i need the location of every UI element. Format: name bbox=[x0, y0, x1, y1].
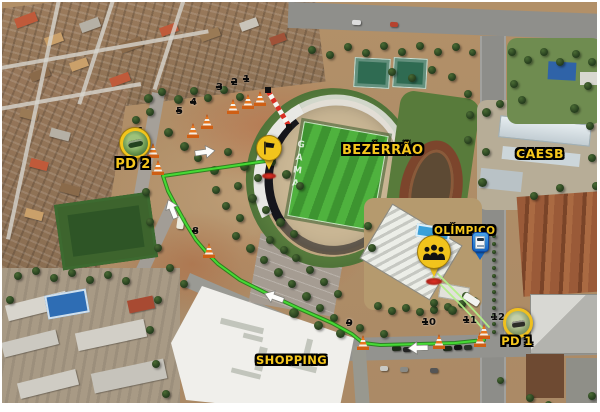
bus-glyph bbox=[475, 236, 485, 249]
tree bbox=[236, 93, 244, 101]
tree bbox=[236, 214, 244, 222]
tree bbox=[496, 100, 504, 108]
tree bbox=[478, 178, 487, 187]
vehicle bbox=[390, 22, 398, 27]
industrial-warehouse bbox=[530, 294, 598, 354]
tree bbox=[314, 321, 323, 330]
tree bbox=[288, 280, 296, 288]
tree bbox=[448, 73, 456, 81]
road-north bbox=[288, 2, 598, 40]
tree bbox=[276, 218, 285, 227]
tree bbox=[430, 299, 438, 307]
tree bbox=[524, 56, 532, 64]
tree bbox=[530, 192, 538, 200]
car-icon bbox=[127, 138, 143, 148]
tree bbox=[222, 202, 230, 210]
tree bbox=[50, 274, 58, 282]
vehicle bbox=[454, 345, 462, 350]
tree bbox=[334, 290, 342, 298]
tree bbox=[448, 306, 457, 315]
tree bbox=[492, 274, 496, 278]
tree bbox=[540, 48, 548, 56]
industrial-rust-roofs bbox=[517, 191, 598, 297]
tree bbox=[246, 244, 255, 253]
tree bbox=[416, 42, 424, 50]
tree bbox=[518, 96, 526, 104]
tree bbox=[510, 80, 518, 88]
tree bbox=[408, 74, 416, 82]
tree bbox=[492, 266, 496, 270]
tree bbox=[482, 148, 490, 156]
vehicle bbox=[403, 347, 411, 352]
bus-icon bbox=[472, 232, 489, 252]
tree bbox=[146, 326, 154, 334]
pin-anchor-spot bbox=[262, 173, 276, 179]
tree bbox=[508, 48, 516, 56]
sport-court bbox=[392, 57, 428, 89]
tree bbox=[326, 51, 334, 59]
tree bbox=[154, 296, 162, 304]
tree bbox=[398, 48, 406, 56]
tree bbox=[132, 116, 140, 124]
tree bbox=[158, 88, 166, 96]
tree bbox=[146, 108, 154, 116]
frame-border bbox=[0, 0, 600, 2]
label-caesb: CAESB bbox=[516, 146, 564, 162]
tree bbox=[289, 308, 299, 318]
pin-anchor-spot bbox=[426, 278, 442, 285]
tree bbox=[492, 258, 496, 262]
soccer-field bbox=[54, 192, 158, 271]
tree bbox=[144, 94, 153, 103]
tree bbox=[497, 377, 504, 384]
tree bbox=[588, 154, 596, 162]
tree bbox=[330, 314, 338, 322]
vehicle bbox=[176, 216, 185, 230]
tree bbox=[232, 232, 240, 240]
tree bbox=[336, 329, 345, 338]
tree bbox=[388, 307, 396, 315]
tree bbox=[368, 244, 376, 252]
tree bbox=[469, 49, 476, 56]
frame-border bbox=[0, 0, 2, 412]
photo-pin-icon bbox=[119, 127, 151, 159]
tree bbox=[428, 66, 436, 74]
tree bbox=[492, 322, 496, 326]
tree bbox=[306, 266, 314, 274]
car-icon bbox=[512, 320, 526, 328]
tree bbox=[526, 394, 534, 402]
tree bbox=[280, 246, 288, 254]
tree bbox=[274, 268, 283, 277]
sport-court bbox=[353, 57, 391, 89]
satellite-imagery: GAMA 123456789101112 bbox=[2, 2, 598, 403]
tree bbox=[316, 304, 324, 312]
vehicle bbox=[400, 367, 408, 372]
traffic-cone-icon bbox=[152, 160, 164, 175]
tree bbox=[570, 104, 579, 113]
traffic-cone-icon bbox=[187, 123, 199, 138]
tree bbox=[204, 94, 212, 102]
tree bbox=[364, 222, 372, 230]
traffic-cone-icon bbox=[201, 114, 213, 129]
tree bbox=[210, 166, 219, 175]
tree bbox=[482, 108, 491, 117]
tree bbox=[492, 242, 496, 246]
tree bbox=[464, 136, 472, 144]
tree bbox=[588, 392, 596, 400]
tree bbox=[190, 87, 198, 95]
tree bbox=[296, 182, 304, 190]
tree bbox=[240, 162, 249, 171]
tree bbox=[344, 43, 352, 51]
vehicle bbox=[380, 366, 388, 371]
tree bbox=[180, 142, 189, 151]
tree bbox=[146, 218, 154, 226]
tree bbox=[380, 42, 388, 50]
tree bbox=[492, 306, 496, 310]
traffic-cone-icon bbox=[254, 91, 266, 106]
tree bbox=[122, 277, 130, 285]
tree bbox=[464, 90, 472, 98]
tree bbox=[320, 278, 328, 286]
tree bbox=[302, 292, 311, 301]
traffic-cone-icon bbox=[203, 243, 215, 258]
vehicle bbox=[352, 20, 361, 25]
tree bbox=[260, 256, 268, 264]
tree bbox=[556, 58, 564, 66]
tree bbox=[430, 306, 438, 314]
tree bbox=[492, 298, 496, 302]
pin-tail bbox=[475, 252, 485, 260]
tree bbox=[586, 122, 594, 130]
tree bbox=[86, 276, 94, 284]
vehicle bbox=[464, 345, 472, 350]
tree bbox=[290, 230, 298, 238]
tree bbox=[142, 188, 150, 196]
tree bbox=[68, 269, 76, 277]
tree bbox=[262, 206, 270, 214]
tree bbox=[174, 95, 183, 104]
tree bbox=[588, 58, 596, 66]
tree bbox=[104, 271, 112, 279]
tree bbox=[380, 330, 388, 338]
industrial-shed bbox=[526, 354, 564, 398]
vehicle bbox=[392, 346, 401, 351]
speed-camera-photo bbox=[123, 131, 148, 156]
traffic-cone-icon bbox=[227, 99, 239, 114]
tree bbox=[374, 302, 382, 310]
tree bbox=[308, 46, 316, 54]
tree bbox=[164, 128, 173, 137]
tree bbox=[6, 296, 14, 304]
tree bbox=[584, 82, 592, 90]
tree bbox=[194, 154, 202, 162]
flag-icon bbox=[256, 135, 282, 161]
tree bbox=[492, 330, 496, 334]
tree bbox=[434, 48, 442, 56]
tree bbox=[14, 272, 22, 280]
tree bbox=[572, 50, 580, 58]
people-group-icon bbox=[417, 235, 451, 269]
tree bbox=[166, 264, 174, 272]
tree bbox=[152, 360, 160, 368]
tree bbox=[356, 324, 364, 332]
tree bbox=[362, 49, 370, 57]
tree bbox=[32, 267, 40, 275]
tree bbox=[282, 170, 291, 179]
vehicle bbox=[430, 368, 438, 373]
frame-border bbox=[0, 403, 600, 412]
tree bbox=[466, 111, 474, 119]
tree bbox=[162, 390, 170, 398]
tree bbox=[180, 280, 188, 288]
tree bbox=[402, 304, 410, 312]
annotated-satellite-map: GAMA 123456789101112 bbox=[0, 0, 600, 412]
tree bbox=[492, 282, 496, 286]
tree bbox=[452, 43, 460, 51]
tree bbox=[292, 254, 300, 262]
tree bbox=[388, 68, 396, 76]
tree bbox=[458, 300, 466, 308]
tree bbox=[266, 236, 274, 244]
tree bbox=[254, 174, 262, 182]
tree bbox=[224, 148, 232, 156]
label-line: SHOPPING bbox=[256, 353, 327, 367]
tree bbox=[234, 182, 242, 190]
tree bbox=[212, 186, 220, 194]
label-pd1: PD 1 bbox=[501, 334, 533, 348]
tree bbox=[556, 184, 564, 192]
label-pd2: PD 2 bbox=[115, 157, 151, 173]
tree bbox=[416, 308, 424, 316]
label-line: BEZERRÃO bbox=[342, 142, 423, 159]
tree bbox=[492, 290, 496, 294]
tree bbox=[492, 250, 496, 254]
tree bbox=[248, 194, 257, 203]
tree bbox=[154, 244, 162, 252]
